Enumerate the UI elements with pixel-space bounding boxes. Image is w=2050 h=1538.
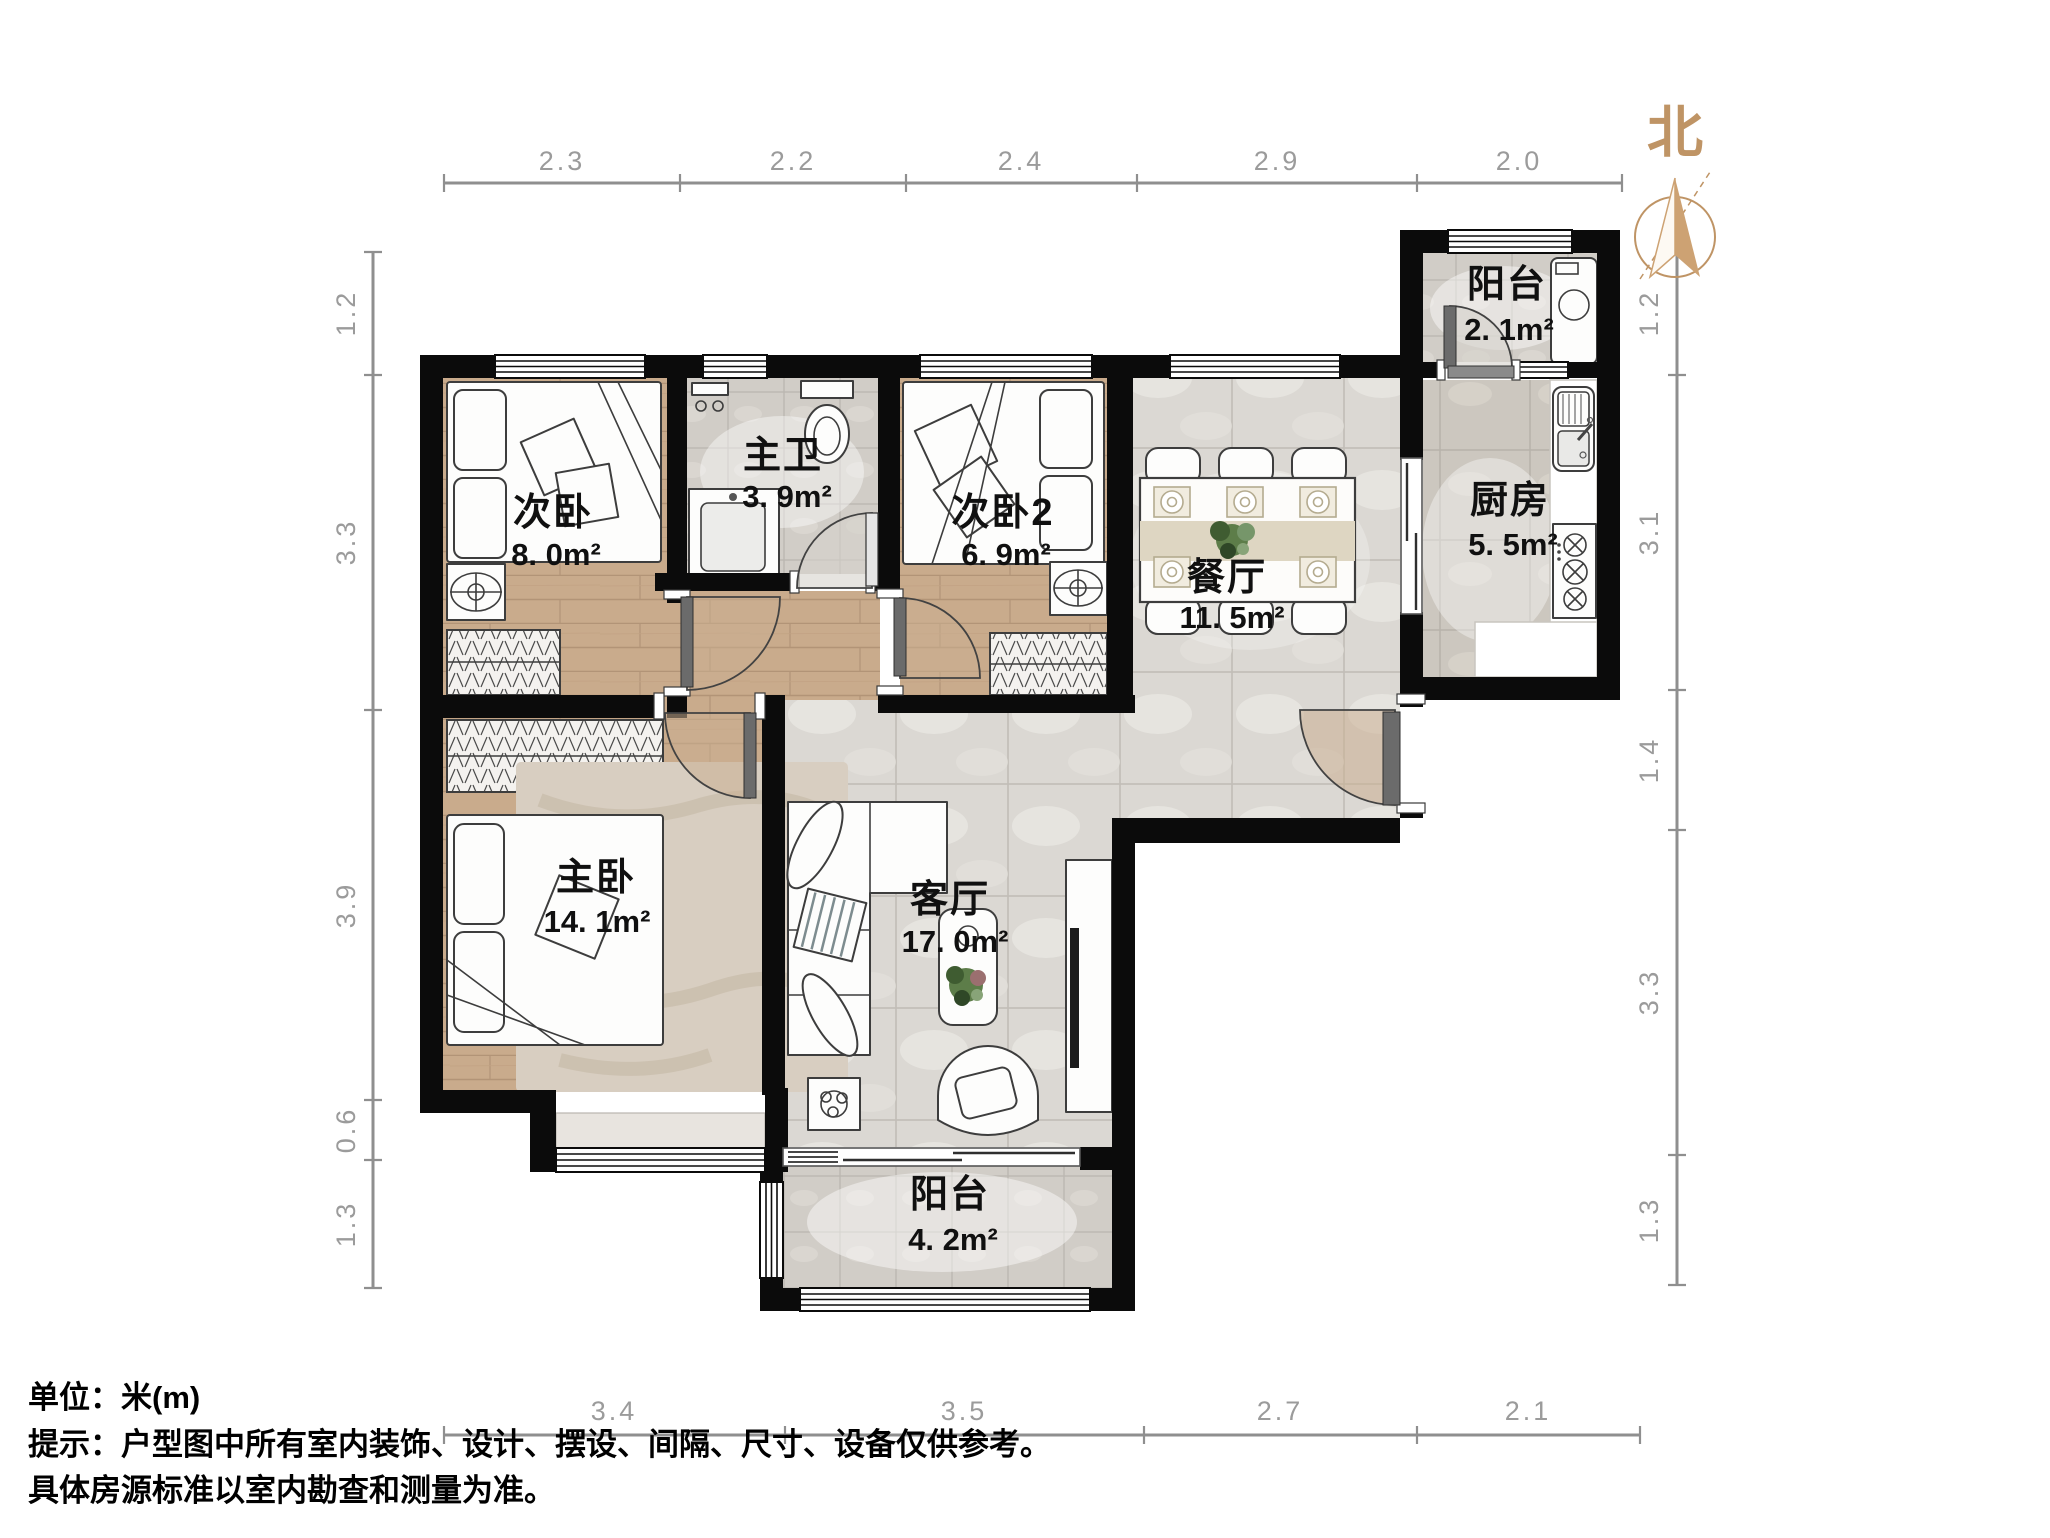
room-label-bathroom: 主卫 bbox=[743, 435, 823, 477]
dim-label: 2.1 bbox=[1505, 1396, 1552, 1426]
sink-icon bbox=[1553, 387, 1594, 471]
window bbox=[800, 1288, 1090, 1311]
window bbox=[703, 355, 767, 378]
room-area-bathroom: 3. 9m² bbox=[742, 479, 832, 514]
room-area-balcony-south: 4. 2m² bbox=[908, 1222, 998, 1257]
pillow-icon bbox=[454, 478, 506, 558]
sliding-door bbox=[783, 1148, 1080, 1166]
room-area-bedroom2: 8. 0m² bbox=[511, 537, 601, 572]
dim-label: 2.0 bbox=[1496, 146, 1543, 176]
window bbox=[760, 1182, 783, 1278]
sliding-door bbox=[1401, 458, 1422, 614]
dim-label: 2.3 bbox=[539, 146, 586, 176]
dim-label: 3.3 bbox=[331, 519, 361, 566]
room-label-bedroom2: 次卧 bbox=[513, 492, 593, 534]
window bbox=[556, 1148, 765, 1172]
room-area-bedroom3: 6. 9m² bbox=[961, 537, 1051, 572]
room-label-kitchen: 厨房 bbox=[1470, 480, 1550, 522]
floorplan-page: 次卧 8. 0m² 主卫 3. 9m² 次卧2 6. 9m² 餐厅 11. 5m… bbox=[0, 0, 2050, 1538]
dim-label: 3.9 bbox=[331, 882, 361, 929]
dim-label: 2.4 bbox=[998, 146, 1045, 176]
armchair-icon bbox=[938, 1046, 1038, 1135]
dim-label: 1.2 bbox=[331, 290, 361, 337]
pillow-icon bbox=[454, 390, 506, 470]
pillow-icon bbox=[454, 824, 504, 924]
flower-table-icon bbox=[808, 1078, 860, 1130]
compass: 北 bbox=[1635, 101, 1715, 279]
dim-label: 2.2 bbox=[770, 146, 817, 176]
window bbox=[1515, 362, 1568, 378]
room-label-dining: 餐厅 bbox=[1187, 557, 1267, 599]
dim-label: 2.7 bbox=[1257, 1396, 1304, 1426]
room-area-dining: 11. 5m² bbox=[1179, 600, 1284, 635]
room-area-balcony-north: 2. 1m² bbox=[1464, 312, 1554, 347]
dim-label: 1.3 bbox=[331, 1201, 361, 1248]
pouf-icon bbox=[794, 889, 867, 962]
footer-notes: 单位：米(m) 提示：户型图中所有室内装饰、设计、摆设、间隔、尺寸、设备仅供参考… bbox=[28, 1380, 1051, 1508]
dim-label: 1.2 bbox=[1634, 290, 1664, 337]
room-label-balcony-south: 阳台 bbox=[910, 1174, 990, 1216]
door-threshold bbox=[1448, 366, 1514, 378]
dim-label: 3.3 bbox=[1634, 969, 1664, 1016]
dimension-top: 2.3 2.2 2.4 2.9 2.0 bbox=[444, 146, 1622, 192]
counter bbox=[1475, 622, 1597, 677]
dim-label: 3.5 bbox=[941, 1396, 988, 1426]
window bbox=[1448, 230, 1572, 253]
dimension-right: 1.2 3.1 1.4 3.3 1.3 bbox=[1634, 252, 1686, 1285]
toilet-icon bbox=[801, 381, 853, 398]
floorplan-canvas: 次卧 8. 0m² 主卫 3. 9m² 次卧2 6. 9m² 餐厅 11. 5m… bbox=[0, 0, 2050, 1538]
footer-unit: 单位：米(m) bbox=[28, 1380, 200, 1415]
room-area-living: 17. 0m² bbox=[902, 924, 1009, 959]
room-label-balcony-north: 阳台 bbox=[1467, 264, 1547, 306]
room-label-bedroom3: 次卧2 bbox=[951, 492, 1054, 534]
dim-label: 1.4 bbox=[1634, 737, 1664, 784]
washbasin-icon bbox=[729, 493, 737, 501]
room-area-master: 14. 1m² bbox=[544, 904, 651, 939]
bay-window-sill bbox=[556, 1113, 765, 1148]
pillow-icon bbox=[454, 932, 504, 1032]
dim-label: 3.4 bbox=[591, 1396, 638, 1426]
dimension-left: 1.2 3.3 3.9 0.6 1.3 bbox=[331, 252, 382, 1288]
dim-label: 0.6 bbox=[331, 1107, 361, 1154]
chair-icon bbox=[1292, 598, 1346, 634]
tv-icon bbox=[1070, 928, 1079, 1068]
balcony-north-fixtures bbox=[1551, 258, 1597, 364]
window bbox=[920, 355, 1092, 378]
north-arrow-icon bbox=[1650, 178, 1675, 277]
dim-label: 3.1 bbox=[1634, 509, 1664, 556]
footer-tip: 提示：户型图中所有室内装饰、设计、摆设、间隔、尺寸、设备仅供参考。 bbox=[28, 1427, 1051, 1462]
shower-valve-icon bbox=[692, 383, 728, 395]
dim-label: 2.9 bbox=[1254, 146, 1301, 176]
dim-label: 1.3 bbox=[1634, 1197, 1664, 1244]
stove-icon bbox=[1553, 524, 1596, 618]
room-area-kitchen: 5. 5m² bbox=[1468, 527, 1558, 562]
window bbox=[1170, 355, 1340, 378]
north-label: 北 bbox=[1647, 101, 1703, 164]
footer-disclaimer: 具体房源标准以室内勘查和测量为准。 bbox=[28, 1473, 555, 1508]
pillow-icon bbox=[1040, 390, 1092, 468]
room-label-master: 主卧 bbox=[556, 857, 636, 899]
window bbox=[495, 355, 645, 378]
room-label-living: 客厅 bbox=[910, 878, 990, 921]
